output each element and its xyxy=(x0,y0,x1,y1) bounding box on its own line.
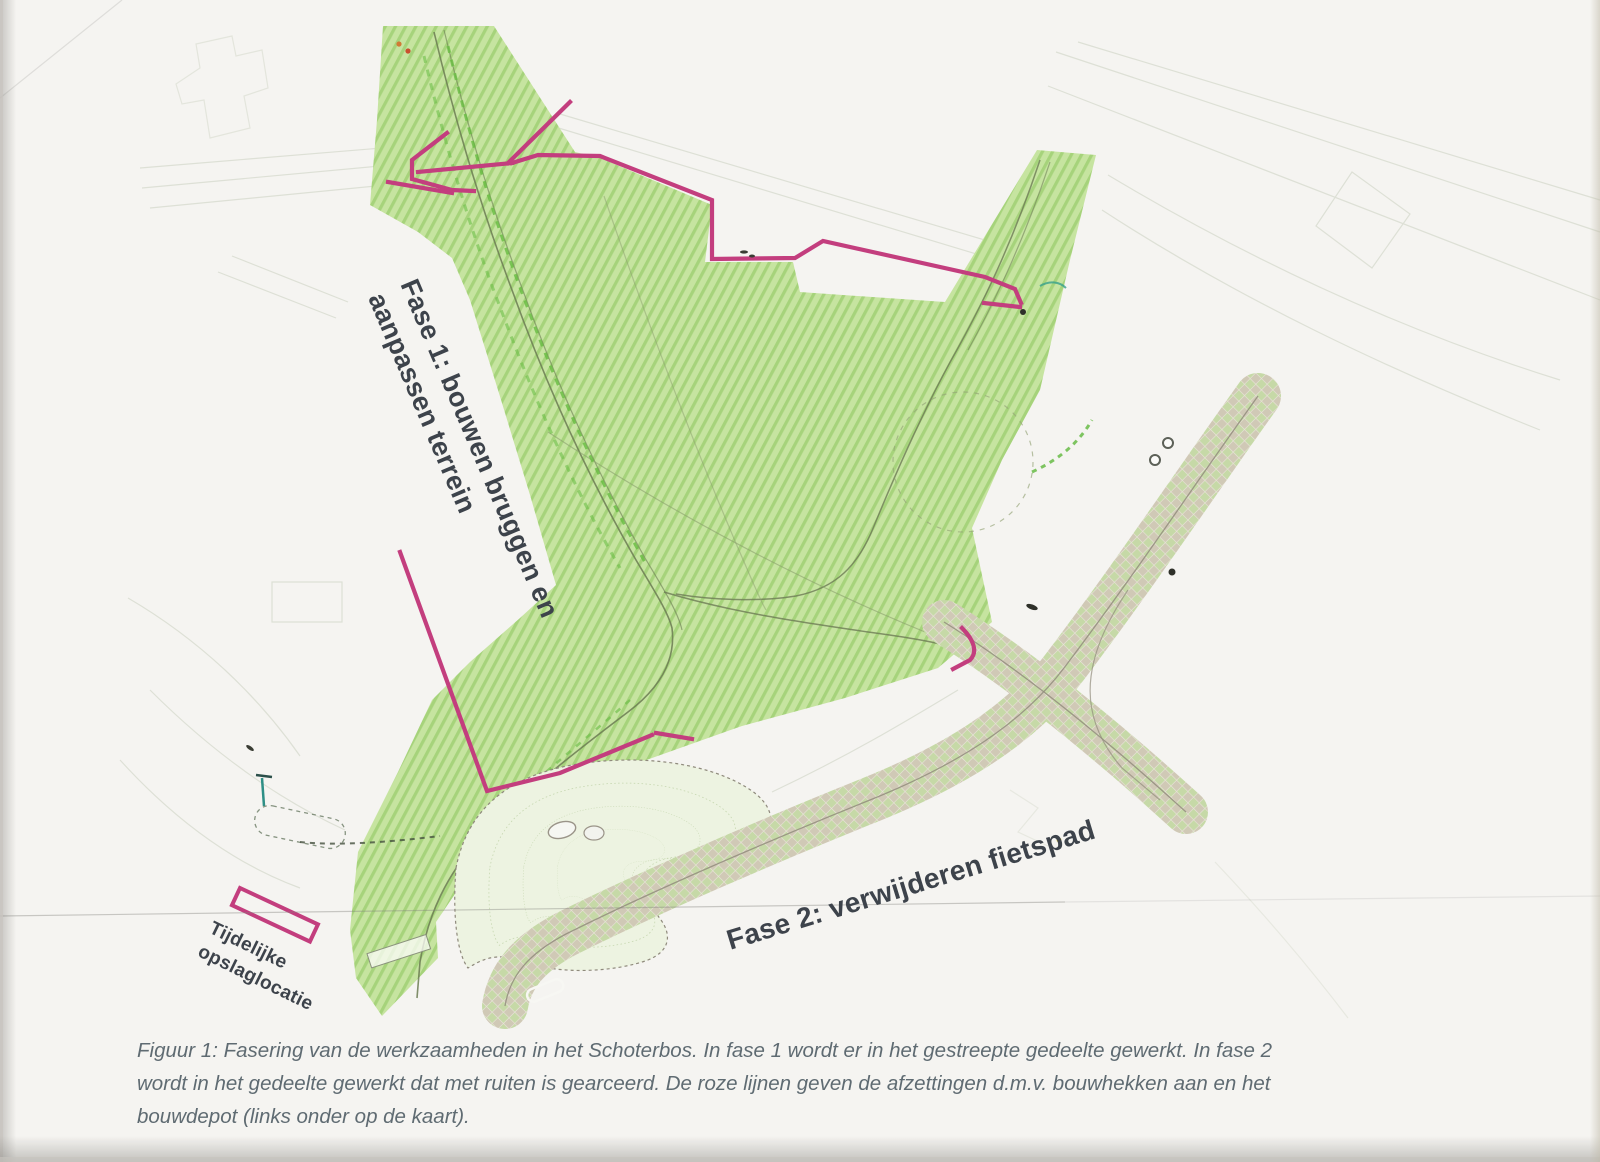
caption-line-3: bouwdepot (links onder op de kaart). xyxy=(137,1100,1272,1133)
site-plan-map xyxy=(0,0,1600,1162)
figure-caption: Figuur 1: Fasering van de werkzaamheden … xyxy=(137,1034,1272,1133)
caption-line-1: Figuur 1: Fasering van de werkzaamheden … xyxy=(137,1034,1272,1067)
scanned-figure-page: Fase 1: bouwen bruggen en aanpassen terr… xyxy=(0,0,1600,1162)
caption-line-2: wordt in het gedeelte gewerkt dat met ru… xyxy=(137,1067,1272,1100)
